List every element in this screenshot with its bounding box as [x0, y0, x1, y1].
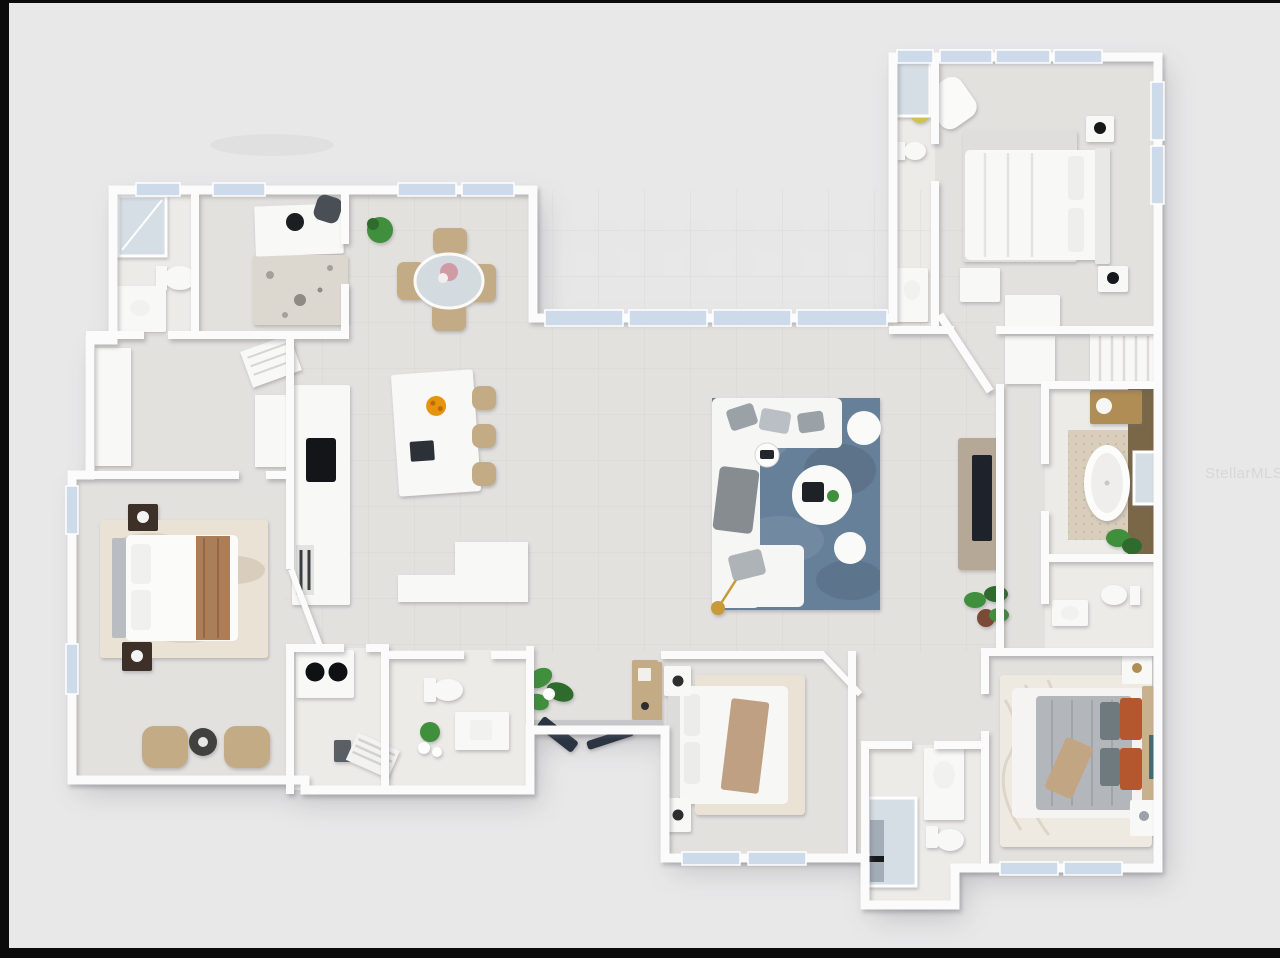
- window: [66, 486, 78, 534]
- table-decor: [198, 737, 208, 747]
- toilet-icon: [433, 679, 463, 701]
- sink: [130, 300, 150, 316]
- toilet-icon: [904, 142, 926, 160]
- window: [213, 183, 265, 196]
- monitor: [286, 213, 304, 231]
- bar-stool: [472, 462, 496, 486]
- pillow: [684, 742, 700, 784]
- window: [398, 183, 456, 196]
- bar-stool: [472, 386, 496, 410]
- toilet-tank: [1130, 586, 1140, 605]
- shower: [896, 62, 930, 116]
- kitchen-island: [391, 369, 481, 496]
- tub-drain: [1105, 481, 1110, 486]
- window: [1151, 82, 1164, 140]
- photo-smudge: [210, 134, 334, 156]
- right-bedroom: [1000, 656, 1160, 847]
- coffee-table-tray: [802, 482, 824, 502]
- island-sink: [410, 440, 435, 462]
- toilet-icon: [936, 829, 964, 851]
- dresser-decor: [638, 668, 651, 681]
- rust-pillow: [1120, 698, 1142, 740]
- sliding-glass-door: [545, 310, 623, 326]
- basket: [418, 742, 430, 754]
- pillow: [684, 694, 700, 736]
- sliding-glass-door: [713, 310, 791, 326]
- shower-glass-panel: [870, 820, 884, 882]
- floor-plan-rendering: StellarMLS: [0, 0, 1280, 958]
- sliding-glass-door: [797, 310, 887, 326]
- headboard: [668, 692, 680, 798]
- centerpiece-detail: [438, 273, 448, 283]
- window: [996, 50, 1050, 63]
- window: [1000, 862, 1058, 875]
- sliding-glass-door: [629, 310, 707, 326]
- ottoman: [834, 532, 866, 564]
- window: [1151, 146, 1164, 204]
- wardrobe: [95, 348, 131, 466]
- brown-throw-runner: [196, 536, 230, 640]
- wardrobe: [1005, 336, 1055, 384]
- side-table-decor: [760, 450, 774, 459]
- pillow: [131, 590, 151, 630]
- window: [462, 183, 514, 196]
- lamp: [131, 650, 143, 662]
- sofa-pillow: [797, 410, 826, 433]
- nightstand-decor: [1139, 811, 1149, 821]
- nightstand-decor: [1132, 663, 1142, 673]
- bar-stool: [472, 424, 496, 448]
- table-plant: [827, 490, 839, 502]
- dining-chair: [433, 228, 467, 254]
- gray-pillow: [1100, 748, 1120, 786]
- window: [748, 852, 806, 865]
- ottoman: [847, 411, 881, 445]
- window: [940, 50, 992, 63]
- sink: [933, 761, 955, 789]
- armchair: [142, 726, 188, 768]
- washer-door: [306, 663, 325, 682]
- sink: [904, 280, 920, 300]
- window: [1054, 50, 1102, 63]
- pillow: [1068, 156, 1084, 200]
- dresser-decor: [641, 702, 649, 710]
- sink: [470, 720, 492, 740]
- window: [1064, 862, 1122, 875]
- lamp: [673, 810, 684, 821]
- plant-leaf: [367, 218, 379, 230]
- window: [897, 50, 933, 63]
- speckled-rug: [253, 255, 348, 325]
- rust-pillow: [1120, 748, 1142, 790]
- black-lamp: [1094, 122, 1106, 134]
- pillow: [131, 544, 151, 584]
- sink: [1061, 606, 1079, 620]
- lamp: [137, 511, 149, 523]
- armchair: [224, 726, 270, 768]
- gray-pillow: [1100, 702, 1120, 740]
- toilet-icon: [1101, 585, 1127, 605]
- closet-dresser: [960, 268, 1000, 302]
- middle-bedroom: [632, 660, 805, 832]
- pillow: [1068, 208, 1084, 252]
- lamp: [673, 676, 684, 687]
- sofa-throw: [712, 466, 760, 534]
- window: [66, 644, 78, 694]
- plant-icon: [420, 722, 440, 742]
- toilet-tank: [926, 826, 938, 848]
- floor-plan-screenshot: StellarMLS: [0, 0, 1280, 958]
- closet-dresser: [1005, 295, 1060, 327]
- stellar-mls-watermark: StellarMLS: [1205, 465, 1280, 482]
- headboard: [1095, 148, 1110, 264]
- black-lamp: [1107, 272, 1119, 284]
- sink: [1096, 398, 1112, 414]
- dryer-door: [329, 663, 348, 682]
- window: [136, 183, 180, 196]
- basket: [432, 747, 442, 757]
- tv-screen: [972, 455, 992, 541]
- cooktop-icon: [306, 438, 336, 482]
- headboard: [112, 538, 126, 638]
- window: [682, 852, 740, 865]
